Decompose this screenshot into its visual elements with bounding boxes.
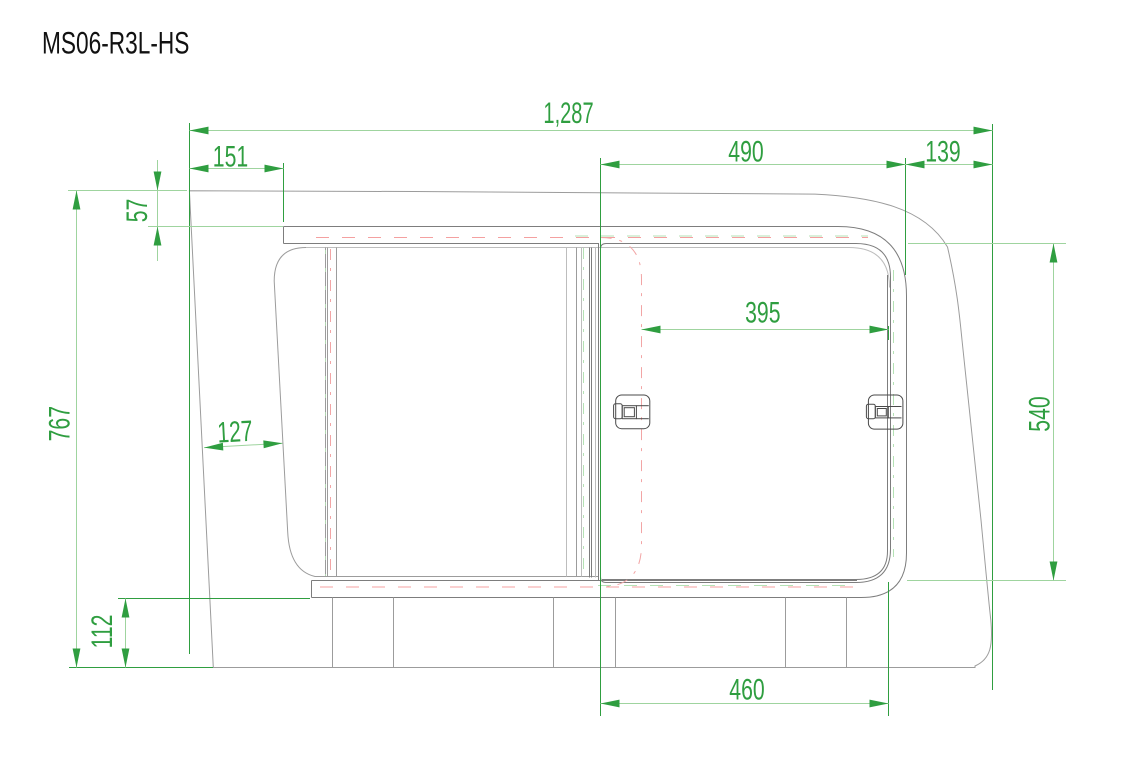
svg-text:1,287: 1,287 — [543, 97, 593, 130]
svg-text:540: 540 — [1024, 396, 1056, 431]
svg-text:139: 139 — [925, 136, 960, 168]
svg-text:MS06-R3L-HS: MS06-R3L-HS — [42, 25, 189, 61]
svg-text:112: 112 — [87, 615, 119, 649]
svg-text:395: 395 — [745, 297, 780, 329]
svg-text:767: 767 — [44, 406, 76, 441]
svg-text:460: 460 — [729, 674, 764, 706]
svg-text:490: 490 — [728, 136, 763, 168]
svg-text:57: 57 — [122, 199, 154, 223]
svg-text:151: 151 — [213, 141, 248, 173]
svg-text:127: 127 — [216, 416, 253, 450]
